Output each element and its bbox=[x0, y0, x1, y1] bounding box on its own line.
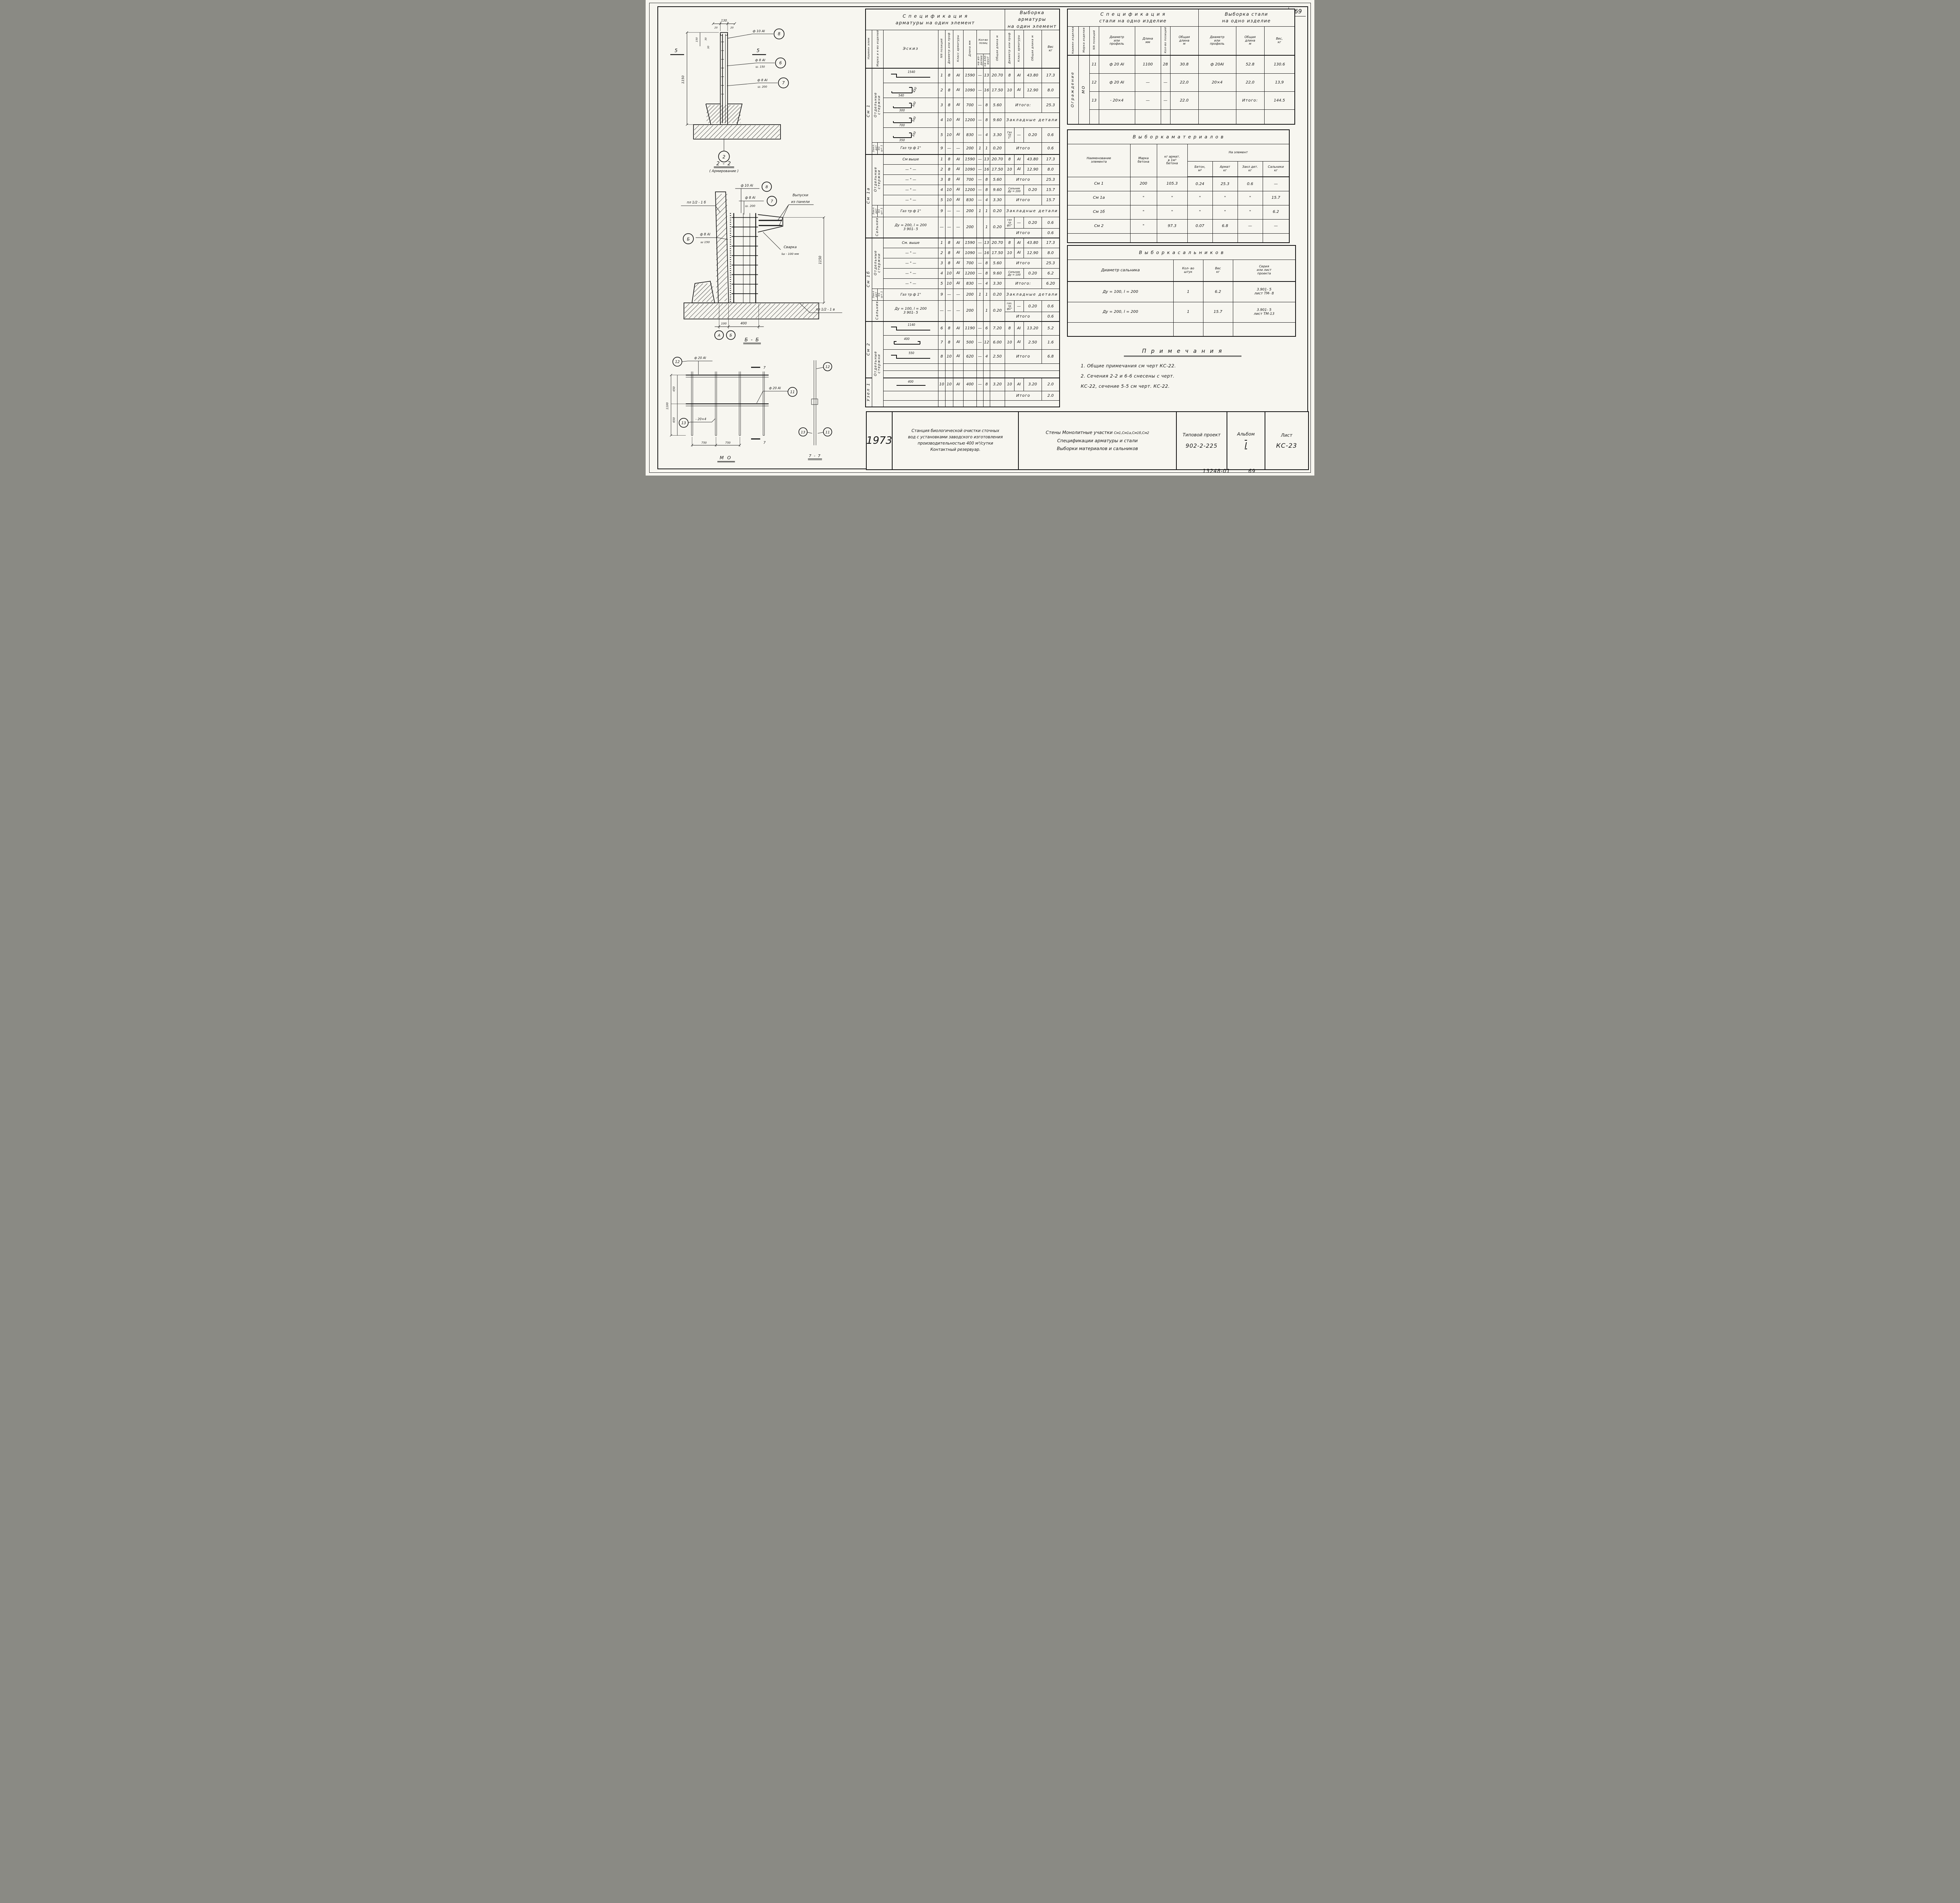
glands-body: Ду = 100, l = 20016.23.901- 5 лист ТМ- 8… bbox=[1067, 281, 1296, 336]
callout-13: 13 bbox=[681, 421, 686, 425]
col-eskiz: Эскиз bbox=[883, 30, 938, 68]
data-cell: АI bbox=[953, 195, 963, 205]
hatch-line bbox=[694, 125, 699, 130]
data-cell: Ду = 200, l = 200 3 901- 5 bbox=[883, 217, 938, 238]
data-cell: 3 bbox=[938, 258, 945, 269]
tr-element bbox=[1067, 109, 1295, 124]
span-element: Закл. дет bbox=[872, 144, 878, 152]
hatch-line bbox=[694, 125, 704, 135]
tr-element: См 1а"""""15.7 bbox=[1067, 191, 1289, 205]
data-cell: ф 20 АI bbox=[1099, 55, 1135, 73]
path-element bbox=[818, 432, 823, 434]
data-cell: 4 bbox=[983, 350, 990, 364]
path-element bbox=[739, 201, 764, 215]
sheet-title-cell: Стены Монолитные участки См1,См1а,См1б,С… bbox=[1018, 412, 1176, 469]
data-cell bbox=[1198, 109, 1236, 124]
steel-spec-table: С п е ц и ф и к а ц и ястали на одно изд… bbox=[1067, 9, 1295, 125]
drawing-title: 2 - 2 ( Армирование ) bbox=[710, 161, 739, 173]
data-cell: — bbox=[976, 154, 983, 165]
span-element: NN позиций bbox=[1093, 30, 1096, 50]
rebar-callout-label: ф 10 АI bbox=[741, 183, 753, 187]
data-cell: 16 bbox=[983, 83, 990, 98]
data-cell: - 20×4 bbox=[1099, 91, 1135, 109]
rebar-sketch: 400 bbox=[886, 378, 936, 391]
span-element: Ограждение bbox=[1071, 71, 1075, 107]
data-cell: 1 bbox=[983, 289, 990, 301]
span-element: Наимен изделия bbox=[1071, 27, 1074, 54]
data-cell: — bbox=[976, 98, 983, 113]
rebar-sketch: 350350 bbox=[886, 129, 936, 142]
data-cell: 12.90 bbox=[1024, 248, 1042, 258]
data-cell bbox=[1173, 322, 1203, 336]
tr-element: СальникДу = 100, l = 200 3 901- 5———2001… bbox=[866, 301, 1060, 312]
data-cell: 3.30 bbox=[990, 279, 1005, 289]
data-cell: 6.2 bbox=[1263, 205, 1289, 219]
data-cell: 10 bbox=[945, 350, 953, 364]
data-cell: — bbox=[1161, 73, 1170, 91]
data-cell: 17.50 bbox=[990, 248, 1005, 258]
data-cell: 1 bbox=[1173, 302, 1203, 322]
data-cell: АI bbox=[953, 238, 963, 248]
data-cell: 10 bbox=[945, 128, 953, 143]
data-cell: АI bbox=[953, 336, 963, 350]
rebar-sketch: 550 bbox=[886, 350, 936, 363]
archive-stamp: 13248-0169 bbox=[1203, 468, 1256, 474]
hatch-line bbox=[716, 216, 727, 227]
data-cell: 1090 bbox=[963, 248, 976, 258]
hatch-line bbox=[716, 227, 727, 238]
data-cell: АI bbox=[1014, 154, 1024, 165]
steel-title: С п е ц и ф и к а ц и ястали на одно изд… bbox=[1067, 9, 1198, 26]
tr-element: 13- 20×4——22.0Итого:144.5 bbox=[1067, 91, 1295, 109]
data-cell: Отдельные стержни bbox=[872, 154, 883, 205]
data-cell: Ду = 100, l = 200 bbox=[1067, 281, 1173, 302]
data-cell: АI bbox=[953, 113, 963, 128]
sketch-dim: 700 bbox=[899, 123, 905, 127]
data-cell: 3.30 bbox=[990, 128, 1005, 143]
data-cell: 7 bbox=[938, 336, 945, 350]
data-cell: 8 bbox=[983, 175, 990, 185]
data-cell bbox=[945, 391, 953, 401]
data-cell: м1 шт.1 bbox=[878, 143, 884, 154]
data-cell: " bbox=[1212, 205, 1238, 219]
data-cell: 25.3 bbox=[1212, 177, 1238, 191]
data-cell: 9 bbox=[938, 143, 945, 154]
data-cell: — bbox=[953, 301, 963, 321]
data-cell: Закл дет bbox=[872, 289, 878, 301]
path-element bbox=[817, 367, 824, 369]
tr-element: — " —410АI1200—89.60Сальник Ду = 2000.20… bbox=[866, 185, 1060, 195]
data-cell: Газ тр 1" bbox=[1005, 128, 1014, 143]
data-cell: 5 bbox=[938, 279, 945, 289]
col-gland-ves: Вес кг bbox=[1203, 260, 1233, 281]
data-cell: АI bbox=[953, 128, 963, 143]
tr-element: — " —38АI700—85.60Итого25.3 bbox=[866, 175, 1060, 185]
section-label: См 1 bbox=[866, 68, 872, 154]
path-element bbox=[894, 341, 920, 344]
tr-element: Ду = 200, l = 200115.73.901- 5 лист ТМ-1… bbox=[1067, 302, 1296, 322]
data-cell: 13 bbox=[1089, 91, 1099, 109]
path-element bbox=[671, 375, 686, 436]
data-cell bbox=[1198, 91, 1236, 109]
span-element: Отдельные стержни bbox=[874, 92, 881, 117]
materials-header: В ы б о р к а м а т е р и а л о в Наимен… bbox=[1067, 130, 1289, 177]
data-cell: " bbox=[1238, 191, 1263, 205]
span-element: м1 шт.1 bbox=[878, 291, 883, 298]
title-armirovanie: ( Армирование ) bbox=[710, 169, 739, 173]
data-cell: 1 bbox=[983, 217, 990, 238]
data-cell: Итого bbox=[1005, 175, 1042, 185]
data-cell: Закладные детали bbox=[1005, 113, 1060, 128]
hatch-line bbox=[765, 303, 780, 318]
hatch-line bbox=[724, 298, 727, 301]
data-cell: 700 bbox=[963, 175, 976, 185]
section-mark-7: 7 bbox=[763, 441, 766, 445]
callouts: ф 10 АI 8 ф 8 АI ш. 150 6 ф 8 АI ш. 200 … bbox=[719, 29, 789, 162]
data-cell: АI bbox=[953, 185, 963, 195]
data-cell: — bbox=[976, 336, 983, 350]
data-cell: 200 bbox=[963, 217, 976, 238]
panel-mark-label2: пл 1/2 - 1 в bbox=[816, 307, 835, 311]
data-cell: 8 bbox=[945, 238, 953, 248]
album-value: I bbox=[1245, 441, 1247, 450]
item-label: Ограждение bbox=[1067, 55, 1078, 124]
section-label: См 1б bbox=[866, 238, 872, 321]
span-element: Закл дет bbox=[872, 207, 878, 214]
data-cell: 9.60 bbox=[990, 185, 1005, 195]
data-cell: АI bbox=[953, 83, 963, 98]
data-cell: 10 bbox=[938, 378, 945, 391]
dim-450: 450 bbox=[672, 386, 676, 392]
data-cell: 17.3 bbox=[1042, 68, 1060, 83]
data-cell: 10 bbox=[945, 185, 953, 195]
data-cell: 13.20 bbox=[1024, 321, 1042, 336]
callout-12: 12 bbox=[826, 365, 830, 369]
path-element bbox=[807, 432, 812, 434]
data-cell: 8 bbox=[945, 98, 953, 113]
hatch-line bbox=[722, 303, 737, 318]
tr-element: Итого2.0 bbox=[866, 391, 1060, 401]
dim-130: 130 bbox=[721, 19, 727, 22]
data-cell: — bbox=[1014, 301, 1024, 312]
path-element bbox=[687, 33, 719, 125]
theme-line: Спецификации арматуры и стали bbox=[1057, 437, 1138, 445]
tr-element: См 2"97.30.076.8—— bbox=[1067, 219, 1289, 233]
section-mark-5-left: 5 bbox=[670, 48, 684, 54]
data-cell bbox=[1067, 322, 1173, 336]
materials-body: См 1200105.30.2425.30.6—См 1а"""""15.7См… bbox=[1067, 177, 1289, 243]
data-cell: 1590 bbox=[963, 238, 976, 248]
callout-2: 2 bbox=[722, 154, 725, 160]
data-cell: 4 bbox=[938, 185, 945, 195]
stamp-number: 13248-01 bbox=[1203, 468, 1230, 474]
mark-label: МО bbox=[1078, 55, 1089, 124]
data-cell: 200 bbox=[963, 289, 976, 301]
hatch-line bbox=[716, 194, 722, 200]
data-cell: — bbox=[976, 378, 983, 391]
data-cell: — " — bbox=[883, 165, 938, 175]
data-cell: 20.70 bbox=[990, 154, 1005, 165]
group-label: Отдельные стержни bbox=[872, 68, 883, 143]
tr-element: ОграждениеМО11ф 20 АI11002830.8ф 20АI52.… bbox=[1067, 55, 1295, 73]
data-cell: 12 bbox=[983, 336, 990, 350]
hatch-line bbox=[784, 303, 799, 318]
title-b-b: Б - Б bbox=[744, 337, 759, 343]
data-cell: — bbox=[976, 165, 983, 175]
data-cell: ф 20 АI bbox=[1099, 73, 1135, 91]
tr-element: 700500410АI1200—89.60Закладные детали bbox=[866, 113, 1060, 128]
data-cell: — " — bbox=[883, 185, 938, 195]
detail-7-7: 12 13 11 7 - 7 bbox=[799, 360, 832, 460]
data-cell: — bbox=[976, 269, 983, 279]
data-cell bbox=[990, 391, 1005, 401]
data-cell: 3.20 bbox=[1024, 378, 1042, 391]
data-cell bbox=[1212, 233, 1238, 243]
rebar-callout-label: ф 20 АI bbox=[694, 356, 706, 360]
hatch-line bbox=[716, 238, 727, 249]
span-element: См1,См1а,См1б,См2 bbox=[1114, 431, 1149, 435]
data-cell: АI bbox=[953, 175, 963, 185]
data-cell: 4 bbox=[983, 279, 990, 289]
hatch-line bbox=[756, 303, 770, 318]
data-cell bbox=[990, 364, 1005, 371]
data-cell: АI bbox=[953, 269, 963, 279]
col-zakl: Закл дет. кг bbox=[1238, 161, 1263, 177]
col-dlina: Длина мм bbox=[1135, 26, 1161, 55]
data-cell: 1200 bbox=[963, 269, 976, 279]
footing-hatch bbox=[706, 105, 740, 123]
data-cell: 0.20 bbox=[990, 289, 1005, 301]
hatch-line bbox=[685, 303, 694, 313]
tr-element: Наимен элем Марка и к-во изделий Эскиз N… bbox=[866, 30, 1060, 54]
span-element: Сальник bbox=[876, 301, 879, 320]
data-cell: Отдельные стержни bbox=[872, 238, 883, 289]
data-cell: 5.60 bbox=[990, 98, 1005, 113]
slab-hatch bbox=[685, 303, 818, 318]
data-cell: 0.20 bbox=[1024, 217, 1042, 229]
glands-table: В ы б о р к а с а л ь н и к о в Диаметр … bbox=[1067, 245, 1296, 337]
data-cell bbox=[1233, 322, 1296, 336]
data-cell: м1 шт.1 bbox=[878, 289, 884, 301]
data-cell: 0.20 bbox=[1024, 269, 1042, 279]
data-cell: 0.07 bbox=[1187, 219, 1212, 233]
data-cell: Газ тр ф 1" bbox=[883, 289, 938, 301]
project-label: Типовой проект bbox=[1183, 432, 1221, 438]
rebar-spacing-label: ш. 200 bbox=[758, 85, 768, 88]
hatch-line bbox=[799, 303, 813, 318]
data-cell bbox=[883, 401, 938, 407]
data-cell bbox=[953, 391, 963, 401]
data-cell bbox=[976, 301, 983, 321]
data-cell: 620 bbox=[963, 350, 976, 364]
span-element: Класс арматуры bbox=[1017, 35, 1020, 62]
path-element bbox=[734, 213, 756, 303]
dim-20: 20 bbox=[714, 26, 717, 29]
data-cell: — " — bbox=[883, 279, 938, 289]
data-cell: Закладные детали bbox=[1005, 205, 1060, 217]
data-cell: 20.70 bbox=[990, 238, 1005, 248]
data-cell: 8 bbox=[1005, 321, 1014, 336]
tr-element: Наимен изделия Марка изделия NN позиций … bbox=[1067, 26, 1295, 55]
notes-block: П р и м е ч а н и я 1. Общие примечания … bbox=[1081, 348, 1285, 389]
year: 1973 bbox=[866, 435, 892, 447]
data-cell bbox=[976, 371, 983, 378]
path-element bbox=[735, 189, 760, 213]
data-cell: ф 20АI bbox=[1198, 55, 1236, 73]
data-cell: газ тр ф1" bbox=[1005, 217, 1014, 229]
rebar-sketch: 540450 bbox=[886, 84, 936, 97]
callout-11: 11 bbox=[790, 390, 795, 394]
data-cell: — bbox=[976, 195, 983, 205]
div-element: Выборка стали bbox=[1199, 11, 1295, 18]
data-cell: 1200 bbox=[963, 113, 976, 128]
hatch-line bbox=[702, 291, 713, 302]
span-element: Общая длина м bbox=[996, 35, 999, 61]
data-cell: 8.0 bbox=[1042, 248, 1060, 258]
data-cell: — bbox=[1161, 91, 1170, 109]
data-cell: 8 bbox=[1005, 238, 1014, 248]
data-cell: 2 bbox=[938, 248, 945, 258]
blueprint-sheet: 69 5 5 130 20 20 bbox=[646, 0, 1314, 476]
data-cell: 1 bbox=[938, 238, 945, 248]
data-cell bbox=[1067, 233, 1130, 243]
data-cell: Сальник bbox=[872, 301, 883, 321]
hatch-line bbox=[771, 129, 780, 138]
span-element: Марка изделия bbox=[1082, 27, 1085, 53]
data-cell: 2 bbox=[938, 165, 945, 175]
data-cell: 8 bbox=[945, 258, 953, 269]
callout-6: 6 bbox=[779, 61, 782, 65]
mark-5-label: 5 bbox=[675, 48, 678, 53]
data-cell: — " — bbox=[883, 175, 938, 185]
col-na-element: на эле- мент bbox=[983, 54, 990, 68]
col-vdiam: Диаметр или проф bbox=[1005, 30, 1014, 68]
hatch-line bbox=[707, 295, 713, 302]
path-element bbox=[720, 33, 728, 125]
rebar-callout-label: ф 8 АI bbox=[700, 232, 711, 236]
eskiz-cell: 300300 bbox=[883, 98, 938, 113]
weld-spec-label: lш - 100 мм bbox=[782, 252, 799, 256]
tr-element: СальникДу = 200, l = 200 3 901- 5———2001… bbox=[866, 217, 1060, 229]
note-2-cont: КС-22, сечение 5-5 см черт. КС-22. bbox=[1081, 383, 1285, 389]
data-cell: — bbox=[976, 113, 983, 128]
axis-a: А bbox=[717, 333, 720, 338]
data-cell: АI bbox=[1014, 68, 1024, 83]
data-cell: 30.8 bbox=[1170, 55, 1198, 73]
hatch-line bbox=[794, 303, 808, 318]
col-na-element: На элемент bbox=[1187, 144, 1289, 161]
data-cell: Итого bbox=[1005, 312, 1042, 321]
hatch-line bbox=[694, 283, 708, 297]
data-cell: — " — bbox=[883, 258, 938, 269]
div-element: С п е ц и ф и к а ц и я bbox=[1068, 11, 1198, 18]
hatch-line bbox=[741, 303, 756, 318]
data-cell: 8 bbox=[983, 185, 990, 195]
data-cell: 8 bbox=[945, 321, 953, 336]
data-cell: — bbox=[1014, 128, 1024, 143]
data-cell: 8 bbox=[1005, 68, 1014, 83]
sketch-dim: 540 bbox=[898, 94, 904, 97]
eskiz-cell: 400 bbox=[883, 378, 938, 391]
tr-element: Узел 14001010АI400—83.2010АI3.202.0 bbox=[866, 378, 1060, 391]
data-cell: 400 bbox=[963, 378, 976, 391]
data-cell: 3.20 bbox=[990, 378, 1005, 391]
data-cell: АI bbox=[1014, 378, 1024, 391]
data-cell: 15.7 bbox=[1203, 302, 1233, 322]
data-cell: м1 шт.1 bbox=[878, 205, 884, 217]
col-ves: Вес, кг bbox=[1264, 26, 1295, 55]
span-element: См 1б bbox=[867, 271, 871, 287]
data-cell: Закладные детали bbox=[1005, 289, 1060, 301]
data-cell: 12 bbox=[1089, 73, 1099, 91]
data-cell: Ду = 100, l = 200 3 901- 5 bbox=[883, 301, 938, 321]
tr-element bbox=[866, 401, 1060, 407]
col-diam: Диаметр или проф bbox=[945, 30, 953, 68]
data-cell: 17.50 bbox=[990, 83, 1005, 98]
data-cell: — bbox=[1263, 177, 1289, 191]
data-cell: 0.6 bbox=[1042, 128, 1060, 143]
steel-body: ОграждениеМО11ф 20 АI11002830.8ф 20АI52.… bbox=[1067, 55, 1295, 124]
path-element bbox=[731, 218, 758, 294]
path-element bbox=[718, 325, 760, 328]
data-cell: Сальник Ду = 200 bbox=[1005, 185, 1024, 195]
data-cell: — bbox=[976, 258, 983, 269]
tr-element: В ы б о р к а с а л ь н и к о в bbox=[1067, 245, 1296, 260]
tr-element bbox=[1067, 233, 1289, 243]
spec-header: С п е ц и ф и к а ц и яарматуры на один … bbox=[866, 9, 1060, 68]
hatch-line bbox=[775, 303, 789, 318]
col-nn: NN позиций bbox=[1089, 26, 1099, 55]
data-cell: См выше bbox=[883, 154, 938, 165]
rebar-spacing-label: ш. 150 bbox=[755, 65, 765, 69]
eskiz-cell: 1140 bbox=[883, 321, 938, 336]
data-cell: — bbox=[976, 248, 983, 258]
data-cell: 9.60 bbox=[990, 269, 1005, 279]
tr-element: Диаметр сальника Кол- во штук Вес кг Сер… bbox=[1067, 260, 1296, 281]
data-cell: — bbox=[976, 83, 983, 98]
data-cell: 1 bbox=[983, 301, 990, 321]
span-element: Наимен элем bbox=[867, 38, 870, 59]
span-element: Узел 1 bbox=[867, 382, 871, 401]
data-cell: 8 bbox=[945, 154, 953, 165]
data-cell: 200 bbox=[963, 205, 976, 217]
data-cell: 830 bbox=[963, 128, 976, 143]
data-cell: 10 bbox=[1005, 378, 1014, 391]
col-ves: Вес кг bbox=[1042, 30, 1060, 68]
data-cell: — bbox=[976, 68, 983, 83]
data-cell: — bbox=[1238, 219, 1263, 233]
hatch-line bbox=[694, 283, 703, 292]
col-marka: Марка изделия bbox=[1078, 26, 1089, 55]
sketch-dim: 400 bbox=[908, 380, 914, 383]
data-cell: 6.2 bbox=[1042, 269, 1060, 279]
glands-header: В ы б о р к а с а л ь н и к о в Диаметр … bbox=[1067, 245, 1296, 281]
data-cell: 17.50 bbox=[990, 165, 1005, 175]
tr-element: См 1бОтдельные стержниСм. выше18АI1590—1… bbox=[866, 238, 1060, 248]
data-cell: 0.6 bbox=[1042, 301, 1060, 312]
data-cell: 2.50 bbox=[990, 350, 1005, 364]
data-cell bbox=[983, 391, 990, 401]
hatch-line bbox=[706, 105, 714, 113]
data-cell: 1590 bbox=[963, 68, 976, 83]
data-cell: 4 bbox=[983, 128, 990, 143]
tr-element: С п е ц и ф и к а ц и ястали на одно изд… bbox=[1067, 9, 1295, 26]
data-cell: " bbox=[1130, 219, 1157, 233]
path-element bbox=[759, 220, 782, 225]
tr-element: — " —28АI1090—1617.5010АI12.908.0 bbox=[866, 165, 1060, 175]
data-cell: Итого: bbox=[1005, 98, 1042, 113]
col-armat: Армат кг bbox=[1212, 161, 1238, 177]
